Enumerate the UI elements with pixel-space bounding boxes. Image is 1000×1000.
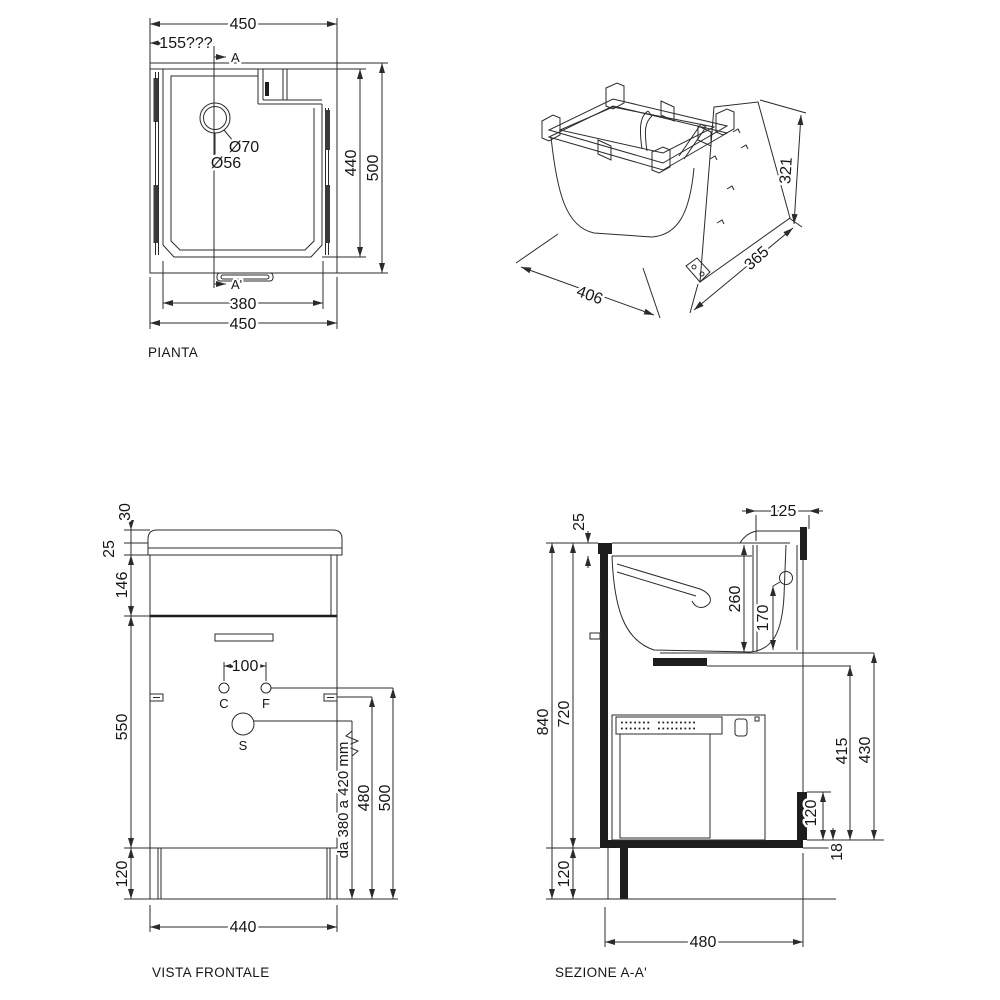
dim-plan-overall-width-bottom: 450 — [230, 316, 257, 333]
plan-bracket-mark — [325, 185, 330, 243]
plan-tub-outer — [163, 69, 322, 257]
dim-iso-height: 321 — [777, 157, 796, 185]
plan-bracket-mark — [325, 110, 330, 150]
iso-pipe — [645, 116, 652, 151]
section-front-panel-cut — [600, 554, 608, 848]
dim-plan-drain-outer: Ø70 — [229, 139, 259, 156]
section-caption: SEZIONE A-A' — [555, 965, 647, 980]
plan-drain-hole-outer — [200, 103, 230, 133]
label-drain: S — [239, 738, 248, 753]
section-drain-trap-cut — [653, 658, 707, 666]
plan-drain-hole-inner — [204, 107, 227, 130]
section-bottom-panel-cut — [605, 840, 803, 848]
plan-soap-dish — [258, 69, 322, 104]
dim-section-step-height: 120 — [803, 800, 820, 827]
section-view: 125 25 260 170 840 720 120 415 430 120 1… — [535, 503, 884, 980]
section-marker-a: A — [231, 50, 240, 65]
dim-plan-overall-width-top: 450 — [230, 16, 257, 33]
dim-section-overflow-height: 170 — [755, 605, 772, 632]
section-marker-a-prime: A' — [231, 277, 242, 292]
dim-section-cabinet-height: 720 — [556, 701, 573, 728]
front-drain-hole — [232, 713, 254, 735]
isometric-view: 321 365 406 — [516, 83, 806, 318]
dim-plan-overall-depth: 500 — [365, 155, 382, 182]
iso-foot-flange — [686, 258, 710, 282]
dim-section-overall-depth: 480 — [690, 934, 717, 951]
front-cold-tap-hole — [219, 683, 229, 693]
section-hinge-tab — [590, 633, 600, 639]
section-overflow-hole — [780, 572, 793, 585]
dim-plan-basin-depth: 440 — [343, 150, 360, 177]
iso-screw-mark — [717, 220, 724, 224]
dim-section-niche-height: 430 — [857, 737, 874, 764]
dim-section-basin-depth: 260 — [727, 586, 744, 613]
section-drawer-box — [620, 734, 710, 838]
dim-front-tap-spacing: 100 — [232, 658, 259, 675]
dim-section-rim-depth: 125 — [770, 503, 797, 520]
front-counter-top — [148, 530, 342, 555]
section-vent-strip — [616, 717, 722, 734]
label-hot-tap: F — [262, 696, 270, 711]
plan-counter-outline — [150, 63, 337, 273]
front-view: 30 25 146 550 120 100 C F S da 380 a 420… — [101, 503, 398, 980]
dim-section-niche-height-inner: 415 — [834, 738, 851, 765]
iso-pipe — [640, 111, 648, 149]
dim-front-handle-height: 480 — [356, 785, 373, 812]
section-plinth-cut — [620, 848, 628, 899]
front-hot-tap-hole — [261, 683, 271, 693]
plan-bracket-mark — [154, 185, 159, 243]
label-cold-tap: C — [219, 696, 228, 711]
dim-front-top-thickness: 30 — [117, 503, 134, 521]
dim-iso-depth: 365 — [741, 243, 772, 274]
front-handle-recess — [215, 634, 273, 641]
dim-front-drain-range: da 380 a 420 mm — [335, 742, 352, 859]
plan-tub-inner — [171, 76, 314, 250]
section-rim-cut — [598, 543, 612, 554]
dim-front-tap-height: 500 — [377, 785, 394, 812]
dim-section-rim-thickness: 25 — [571, 513, 588, 531]
dim-section-plinth-height: 120 — [556, 861, 573, 888]
dim-front-cabinet-width: 440 — [230, 919, 257, 936]
iso-frame-outer — [549, 99, 727, 163]
dim-plan-basin-width: 380 — [230, 296, 257, 313]
section-back-rim-cut — [800, 527, 807, 560]
dim-front-basin-front-height: 146 — [114, 572, 131, 599]
plan-caption: PIANTA — [148, 345, 198, 360]
plan-view: 450 155??? A A' Ø70 Ø56 440 500 380 450 … — [148, 16, 388, 360]
iso-screw-mark — [741, 145, 748, 149]
iso-tub — [551, 137, 694, 237]
section-washboard — [617, 564, 700, 589]
dim-section-bottom-thickness: 18 — [829, 843, 846, 861]
section-bracket — [735, 719, 747, 736]
iso-screw-mark — [710, 156, 717, 160]
technical-drawing-page: 450 155??? A A' Ø70 Ø56 440 500 380 450 … — [0, 0, 1000, 1000]
dim-iso-width: 406 — [574, 283, 605, 308]
dim-plan-drain-inner: Ø56 — [211, 155, 241, 172]
technical-drawing-canvas: 450 155??? A A' Ø70 Ø56 440 500 380 450 … — [0, 0, 1000, 1000]
iso-mounting-plate — [700, 102, 790, 282]
dim-front-rim-thickness: 25 — [101, 540, 118, 558]
dim-front-plinth-height: 120 — [114, 861, 131, 888]
dim-section-overall-height: 840 — [535, 709, 552, 736]
dim-plan-drain-offset: 155??? — [159, 35, 212, 52]
section-basin-bowl — [612, 545, 786, 652]
plan-bracket-mark — [154, 78, 159, 122]
iso-screw-mark — [727, 186, 734, 190]
iso-corner-clamp — [606, 83, 624, 109]
iso-screw-mark — [733, 129, 740, 133]
plan-handle — [217, 273, 273, 281]
iso-rail-clamp — [598, 140, 611, 160]
dim-front-door-height: 550 — [114, 714, 131, 741]
front-caption: VISTA FRONTALE — [152, 965, 270, 980]
